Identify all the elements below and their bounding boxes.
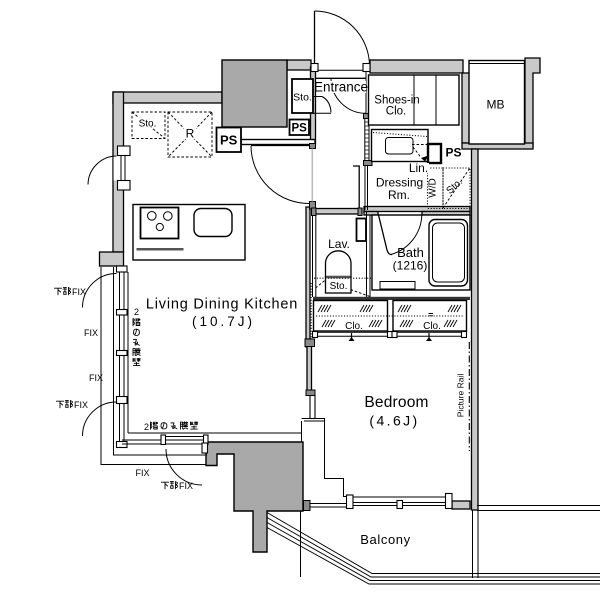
svg-text:Picture Rail: Picture Rail <box>456 374 466 418</box>
svg-text:Balcony: Balcony <box>360 532 410 547</box>
svg-text:Lav.: Lav. <box>328 237 350 251</box>
svg-text:Rm.: Rm. <box>388 188 410 202</box>
svg-text:MB: MB <box>487 98 505 112</box>
svg-text:Sto.: Sto. <box>139 119 157 130</box>
svg-text:(10.7J): (10.7J) <box>192 314 255 329</box>
svg-text:R: R <box>186 127 195 141</box>
svg-text:FIX: FIX <box>72 287 86 297</box>
svg-text:PS: PS <box>292 123 308 135</box>
svg-text:Sto.: Sto. <box>293 92 312 104</box>
svg-text:Living Dining Kitchen: Living Dining Kitchen <box>146 297 298 313</box>
svg-text:(1216): (1216) <box>393 259 428 273</box>
svg-text:Entrance: Entrance <box>314 80 368 95</box>
svg-text:Clo.: Clo. <box>423 321 441 332</box>
svg-text:FIX: FIX <box>84 328 98 338</box>
svg-text:2: 2 <box>144 422 149 432</box>
svg-text:W/D: W/D <box>427 178 438 197</box>
svg-text:2: 2 <box>134 307 139 317</box>
svg-text:Clo.: Clo. <box>386 106 406 118</box>
svg-text:Lin.: Lin. <box>409 161 428 175</box>
svg-text:Bedroom: Bedroom <box>364 394 428 411</box>
svg-text:FIX: FIX <box>89 373 103 383</box>
svg-text:(4.6J): (4.6J) <box>369 413 419 429</box>
svg-text:PS: PS <box>445 146 461 160</box>
svg-text:FIX: FIX <box>136 468 150 478</box>
svg-text:FIX: FIX <box>74 400 88 410</box>
svg-text:Clo.: Clo. <box>345 321 363 332</box>
svg-text:Sto.: Sto. <box>330 281 348 292</box>
svg-text:FIX: FIX <box>179 481 193 491</box>
svg-text:PS: PS <box>220 133 238 148</box>
